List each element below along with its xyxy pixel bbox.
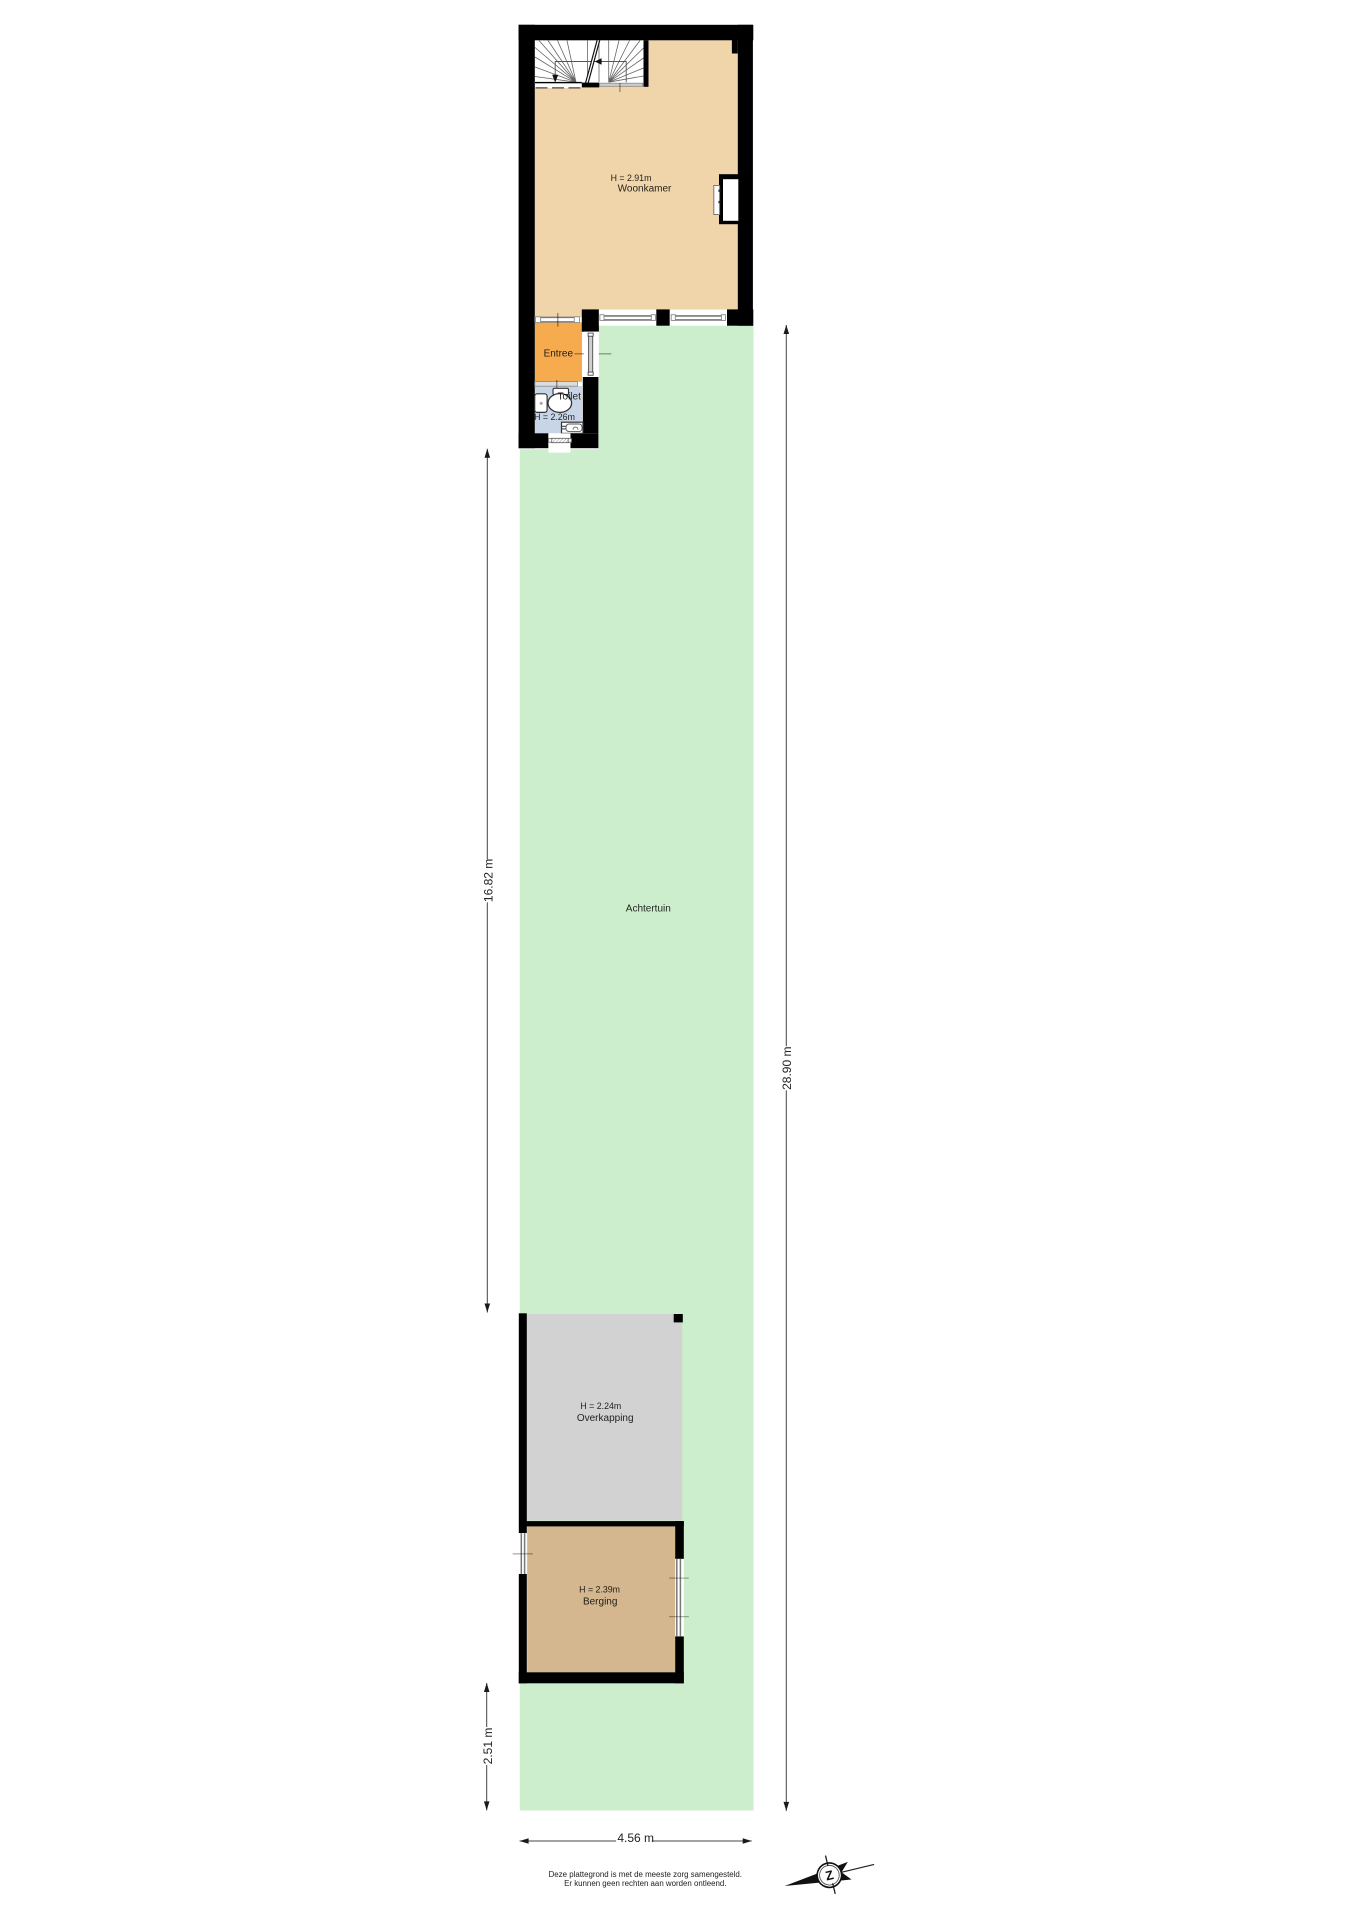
svg-text:H = 2.91m: H = 2.91m (611, 173, 652, 183)
svg-text:H = 2.26m: H = 2.26m (534, 412, 575, 422)
svg-text:Berging: Berging (583, 1597, 617, 1608)
svg-text:H = 2.39m: H = 2.39m (579, 1585, 620, 1595)
svg-text:28.90 m: 28.90 m (780, 1047, 794, 1090)
svg-text:H = 2.24m: H = 2.24m (580, 1401, 621, 1411)
svg-text:4.56 m: 4.56 m (617, 1831, 654, 1845)
svg-text:Woonkamer: Woonkamer (618, 184, 672, 195)
svg-text:2.51 m: 2.51 m (481, 1728, 495, 1765)
svg-text:Entree: Entree (544, 348, 574, 359)
svg-text:16.82 m: 16.82 m (482, 859, 496, 902)
svg-text:Deze plattegrond is met de mee: Deze plattegrond is met de meeste zorg s… (549, 1870, 742, 1879)
svg-text:Toilet: Toilet (558, 391, 582, 402)
svg-text:Overkapping: Overkapping (577, 1413, 634, 1424)
svg-text:Achtertuin: Achtertuin (626, 904, 671, 915)
svg-text:Er kunnen geen rechten aan wor: Er kunnen geen rechten aan worden ontlee… (564, 1879, 726, 1888)
